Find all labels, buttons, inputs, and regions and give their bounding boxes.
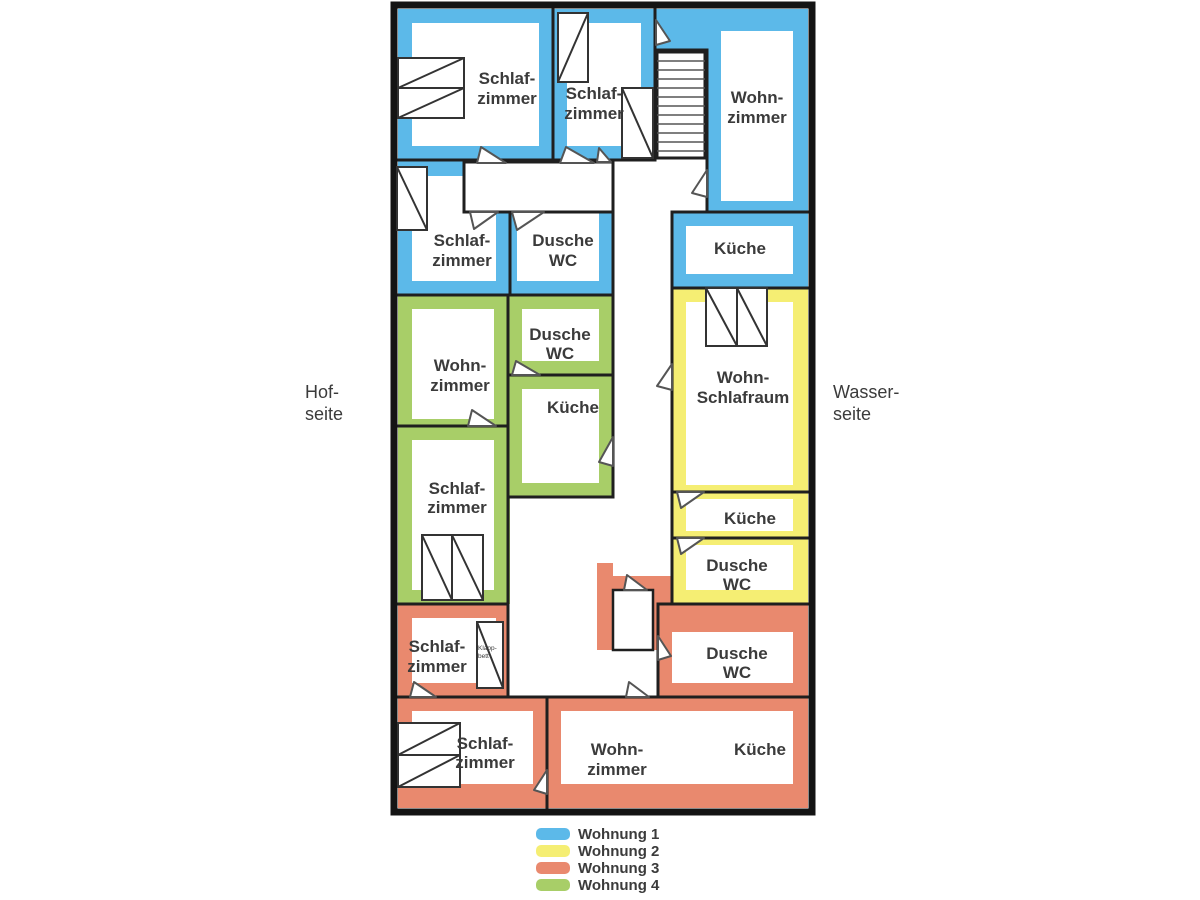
- shaft-niche: [613, 590, 653, 650]
- room-label-sz6: Schlaf-zimmer: [455, 734, 515, 772]
- room-label-wz4: Wohn-zimmer: [430, 356, 490, 395]
- closet-symbol: [622, 88, 653, 158]
- room-label-sz2: Schlaf-zimmer: [564, 84, 624, 123]
- room-label-sz4: Schlaf-zimmer: [427, 479, 487, 517]
- room-label-sz1: Schlaf-zimmer: [477, 69, 537, 108]
- wardrobe-pair-symbol: [422, 535, 483, 600]
- legend-label-wohnung-2: Wohnung 2: [578, 843, 659, 860]
- room-label-sz3: Schlaf-zimmer: [432, 231, 492, 270]
- legend-label-wohnung-4: Wohnung 4: [578, 877, 660, 894]
- bed-symbol: [398, 723, 460, 787]
- legend-swatch-wohnung-4: [536, 879, 570, 891]
- door-swing: [657, 364, 672, 390]
- entry-hall: [464, 162, 613, 212]
- bed-symbol: [398, 58, 464, 118]
- room-label-sz5: Schlaf-zimmer: [407, 637, 467, 676]
- side-label-wasserseite: Wasser-seite: [833, 382, 899, 424]
- wardrobe-pair-symbol: [706, 288, 767, 346]
- door-swing: [626, 682, 649, 697]
- side-label-hofseite: Hof-seite: [305, 382, 343, 424]
- legend: Wohnung 1 Wohnung 2 Wohnung 3 Wohnung 4: [536, 826, 660, 894]
- room-label-ku2: Küche: [724, 509, 776, 528]
- room-label-ku4: Küche: [547, 398, 599, 417]
- legend-swatch-wohnung-2: [536, 845, 570, 857]
- room-label-ku3: Küche: [734, 740, 786, 759]
- legend-label-wohnung-1: Wohnung 1: [578, 826, 659, 843]
- wardrobe-symbol: [397, 167, 427, 230]
- floor-plan-svg: Klapp- bett Schlaf-zimmer Schlaf-zimmer: [0, 0, 1200, 900]
- folding-bed-symbol: Klapp- bett: [477, 622, 503, 688]
- door-swing: [692, 170, 707, 197]
- floor-plan-page: Klapp- bett Schlaf-zimmer Schlaf-zimmer: [0, 0, 1200, 900]
- room-label-ku1: Küche: [714, 239, 766, 258]
- legend-swatch-wohnung-3: [536, 862, 570, 874]
- room-label-wz1: Wohn-zimmer: [727, 88, 787, 127]
- legend-label-wohnung-3: Wohnung 3: [578, 860, 659, 877]
- staircase: [657, 52, 705, 158]
- legend-swatch-wohnung-1: [536, 828, 570, 840]
- wardrobe-symbol: [558, 13, 588, 82]
- room-label-wz3: Wohn-zimmer: [587, 740, 647, 779]
